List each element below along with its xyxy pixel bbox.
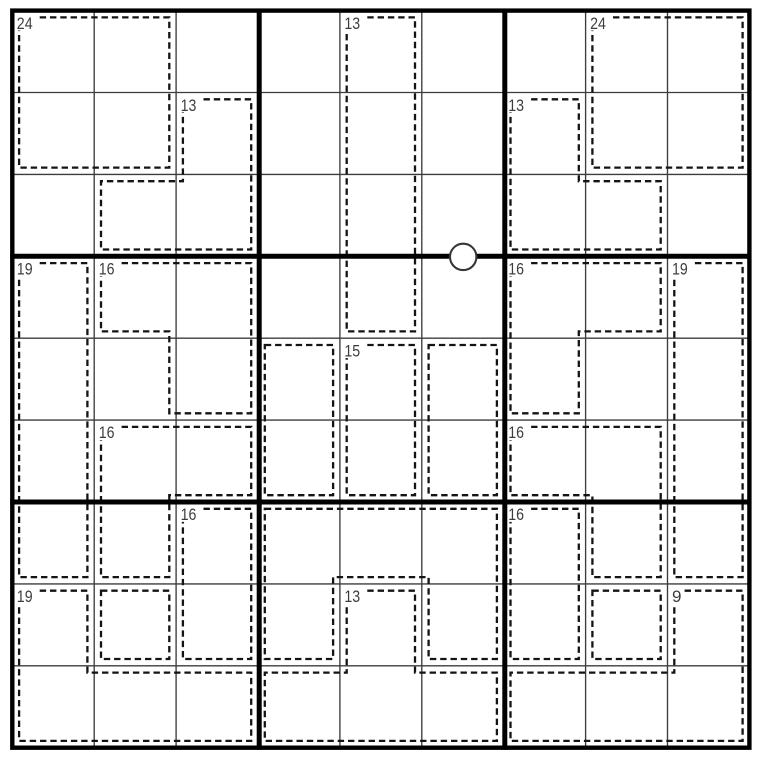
svg-text:16: 16 bbox=[99, 423, 115, 442]
svg-text:9: 9 bbox=[672, 587, 681, 606]
svg-text:19: 19 bbox=[672, 259, 688, 278]
svg-text:16: 16 bbox=[99, 259, 115, 278]
svg-text:19: 19 bbox=[17, 587, 33, 606]
svg-text:16: 16 bbox=[181, 505, 197, 524]
svg-text:16: 16 bbox=[508, 505, 524, 524]
svg-text:19: 19 bbox=[17, 259, 33, 278]
svg-text:16: 16 bbox=[508, 259, 524, 278]
svg-text:15: 15 bbox=[344, 341, 360, 360]
svg-text:13: 13 bbox=[344, 14, 360, 33]
svg-text:13: 13 bbox=[508, 96, 524, 115]
svg-text:24: 24 bbox=[17, 14, 33, 33]
svg-text:13: 13 bbox=[344, 587, 360, 606]
svg-text:16: 16 bbox=[508, 423, 524, 442]
svg-text:24: 24 bbox=[590, 14, 606, 33]
svg-text:13: 13 bbox=[181, 96, 197, 115]
